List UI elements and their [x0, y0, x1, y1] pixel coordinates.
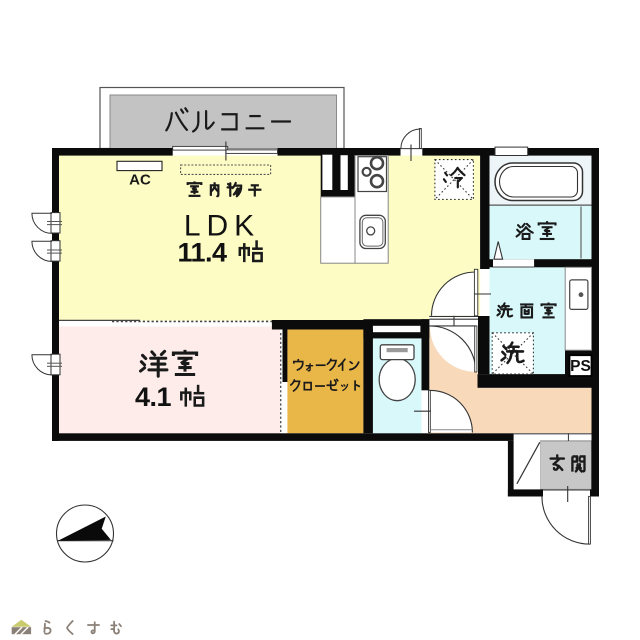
svg-text:AC: AC: [129, 172, 151, 189]
svg-text:PS: PS: [570, 358, 591, 375]
svg-text:4.1: 4.1: [135, 382, 172, 412]
svg-text:11.4: 11.4: [177, 238, 227, 268]
